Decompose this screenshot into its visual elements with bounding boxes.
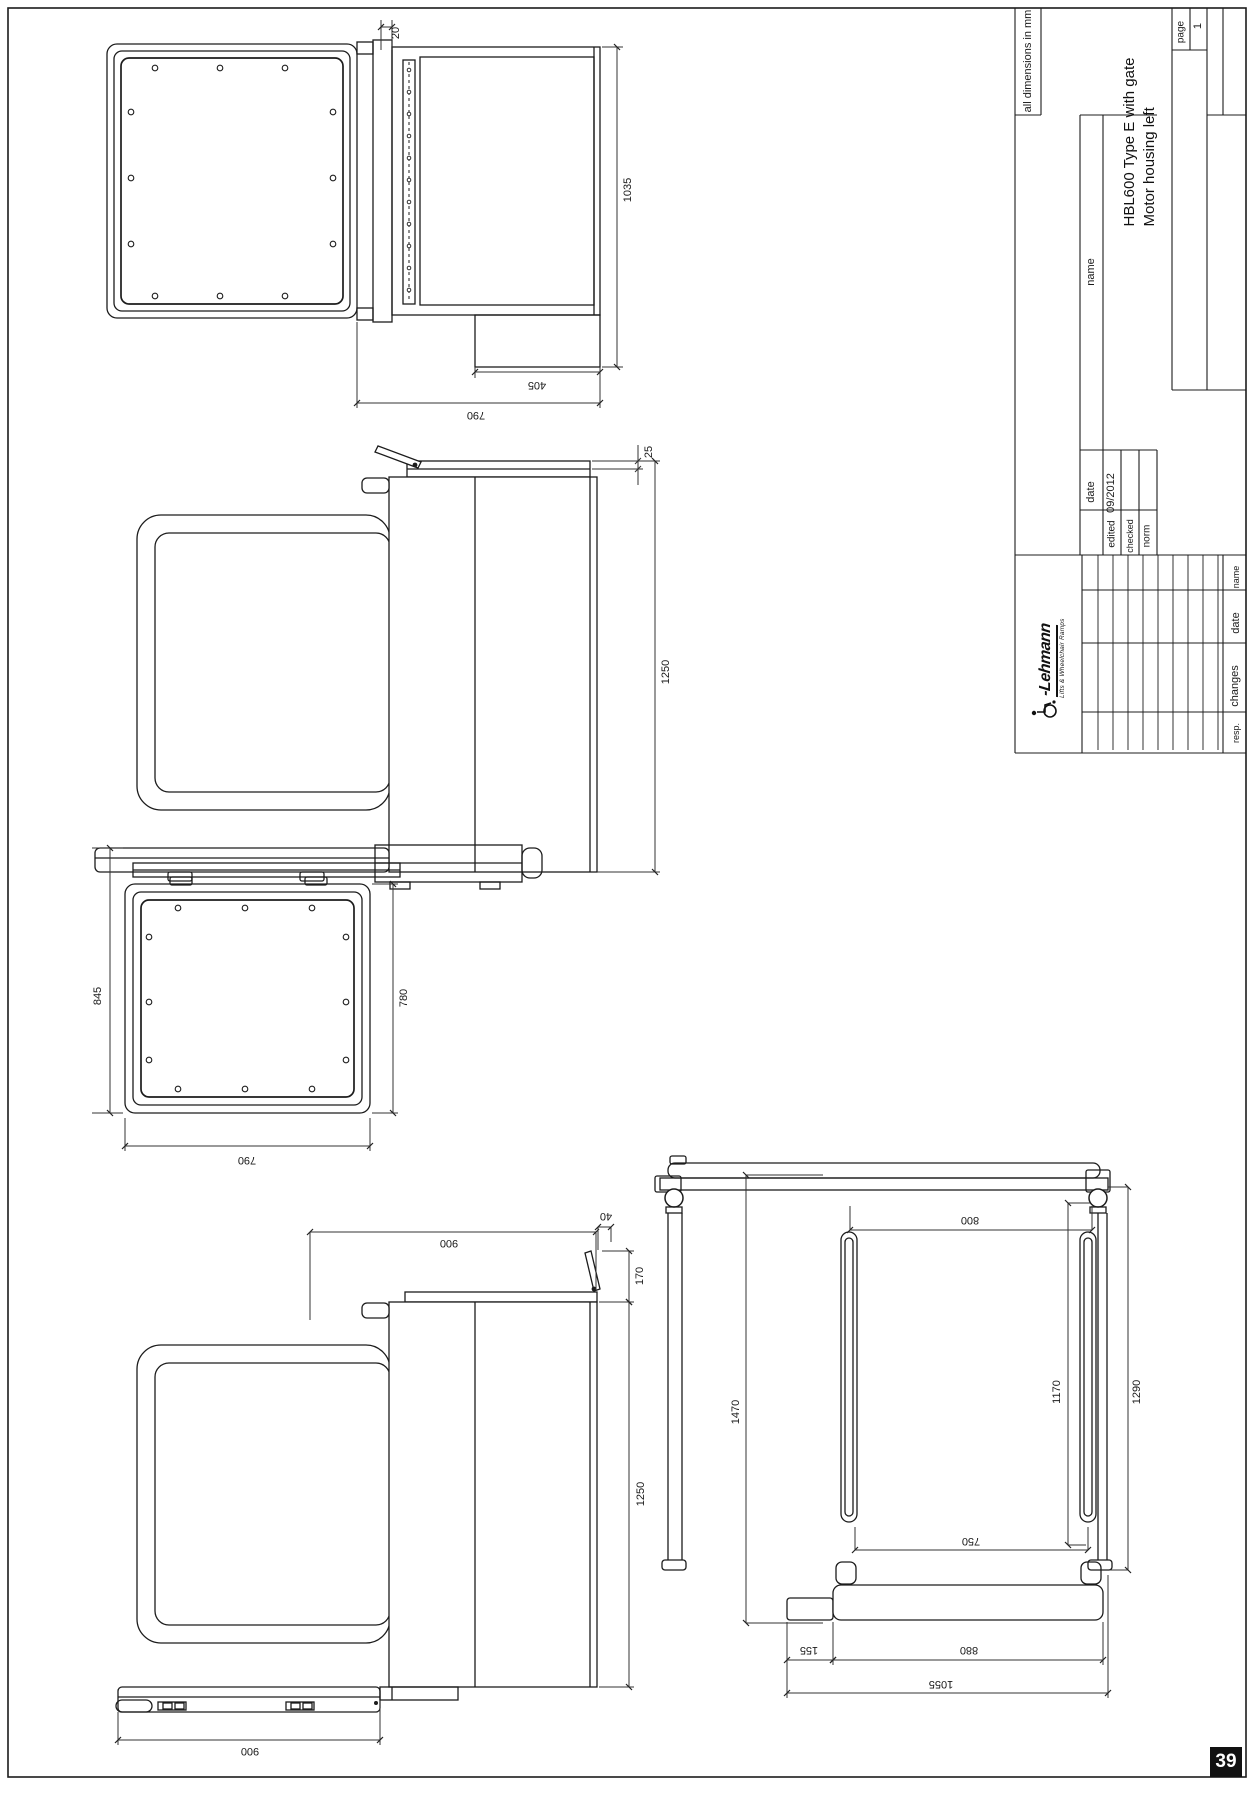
platform-side-strip: [95, 848, 389, 872]
dim-780: 780: [398, 989, 410, 1007]
drawing-sheet: 20 1035 405 790 25 1250 845 780 790 900 …: [0, 0, 1256, 1793]
view-side-lowered: [116, 1227, 634, 1745]
dim-40: 40: [600, 1210, 612, 1222]
dim-900-top: 900: [440, 1237, 458, 1249]
mast-cap: [405, 1292, 597, 1302]
dim-1035: 1035: [622, 178, 634, 202]
guide-slot-right: [1080, 1232, 1096, 1522]
base-box: [833, 1585, 1103, 1620]
units-note: all dimensions in mm: [1022, 10, 1034, 113]
dims-top-view: [357, 20, 623, 408]
gate-outline: [392, 47, 600, 315]
dim-1470: 1470: [730, 1400, 742, 1424]
revision-date-header: date: [1230, 612, 1242, 633]
view-top: [107, 20, 623, 408]
mast-body: [389, 477, 597, 872]
dim-790-top: 790: [467, 409, 485, 421]
handrail-outer: [137, 515, 390, 810]
guide-slot-left: [841, 1232, 857, 1522]
handrail-outer: [137, 1345, 390, 1643]
platform-outline: [125, 884, 370, 1113]
lehmann-logo: -Lehmann Lifts & Wheelchair Ramps: [1030, 600, 1066, 720]
dim-750: 750: [962, 1535, 980, 1547]
motor-housing-box: [475, 315, 600, 367]
logo-tagline: Lifts & Wheelchair Ramps: [1059, 600, 1066, 698]
approval-norm-label: norm: [1142, 525, 1153, 548]
revision-resp-header: resp.: [1231, 723, 1241, 743]
dim-1055: 1055: [929, 1678, 953, 1690]
dim-1250-a: 1250: [660, 660, 672, 684]
dim-1290: 1290: [1131, 1380, 1143, 1404]
dim-845: 845: [92, 987, 104, 1005]
page-label: page: [1176, 21, 1187, 43]
handrail-inner: [155, 533, 390, 792]
wheelchair-icon: [1030, 698, 1058, 720]
dim-25: 25: [643, 446, 655, 458]
dim-790-plan: 790: [238, 1154, 256, 1166]
logo-brand: -Lehmann: [1037, 622, 1058, 697]
mast-body: [389, 1302, 597, 1687]
platform-outline: [107, 44, 357, 318]
barrier-lever: [585, 1251, 600, 1291]
page-value: 1: [1192, 23, 1204, 29]
dim-155: 155: [800, 1644, 818, 1656]
view-plan: [92, 845, 542, 1151]
drawing-title-line2: Motor housing left: [1140, 58, 1160, 227]
drawing-title: HBL600 Type E with gate Motor housing le…: [1120, 58, 1160, 227]
mast-plate: [373, 40, 392, 322]
platform-ground: [118, 1687, 380, 1712]
approval-checked-label: checked: [1125, 519, 1135, 553]
dims-side-raised: [592, 445, 660, 872]
dim-405: 405: [528, 379, 546, 391]
view-side-raised: [95, 445, 660, 881]
dim-1170: 1170: [1051, 1380, 1063, 1404]
approval-date-header: date: [1085, 481, 1097, 502]
approval-edited-date: 09/2012: [1105, 473, 1117, 513]
dim-1250-b: 1250: [635, 1482, 647, 1506]
drawing-lineart: [0, 0, 1256, 1793]
dim-170: 170: [634, 1267, 646, 1285]
revision-changes-header: changes: [1229, 665, 1241, 707]
roller-right: [1089, 1189, 1107, 1207]
platform-bolts: [128, 65, 336, 299]
dim-gap: 20: [390, 27, 402, 39]
platform-bolts: [146, 905, 349, 1092]
handrail-inner: [155, 1363, 390, 1625]
handle-stub: [362, 478, 389, 493]
roller-left: [665, 1189, 683, 1207]
approval-edited-label: edited: [1107, 520, 1118, 547]
drawing-title-line1: HBL600 Type E with gate: [1120, 58, 1140, 227]
revision-name-header: name: [1231, 566, 1241, 589]
base-step: [787, 1598, 833, 1620]
dim-800: 800: [961, 1214, 979, 1226]
top-rail: [668, 1163, 1100, 1178]
view-front: [655, 1156, 1128, 1698]
page-number-badge: 39: [1210, 1747, 1242, 1777]
dim-880: 880: [960, 1644, 978, 1656]
handle-stub: [362, 1303, 389, 1318]
approval-name-header: name: [1085, 258, 1097, 286]
carriage-beam: [660, 1178, 1108, 1190]
dim-900-bottom: 900: [241, 1745, 259, 1757]
